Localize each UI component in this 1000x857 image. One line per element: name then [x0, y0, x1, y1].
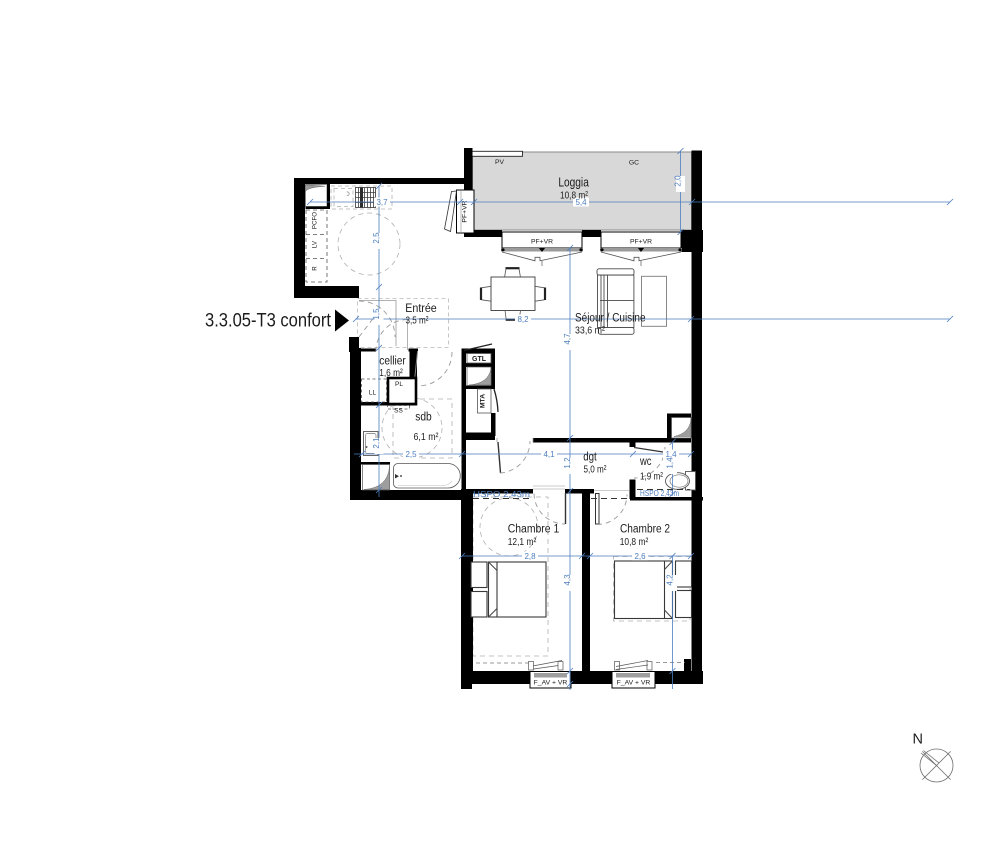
svg-text:Séjour / Cuisine: Séjour / Cuisine [575, 313, 646, 325]
svg-text:Chambre 1: Chambre 1 [508, 524, 560, 536]
svg-text:3,5 m²: 3,5 m² [406, 315, 429, 327]
svg-text:4,3: 4,3 [563, 574, 572, 586]
svg-text:2,6: 2,6 [634, 552, 646, 561]
svg-text:GC: GC [629, 160, 639, 167]
svg-text:R: R [312, 266, 319, 271]
svg-text:2,5: 2,5 [372, 232, 381, 244]
svg-text:LV: LV [312, 240, 319, 248]
svg-text:sdb: sdb [415, 412, 432, 424]
svg-text:33,6 m²: 33,6 m² [575, 325, 605, 337]
svg-text:4,2: 4,2 [666, 574, 675, 586]
svg-text:PF+VR: PF+VR [630, 239, 652, 246]
svg-text:1,5: 1,5 [372, 308, 381, 320]
svg-text:4,1: 4,1 [543, 450, 555, 459]
svg-text:MTA: MTA [480, 394, 487, 408]
svg-text:dgt: dgt [583, 452, 597, 464]
svg-text:2,0: 2,0 [674, 175, 683, 187]
svg-text:4,7: 4,7 [563, 333, 572, 345]
svg-text:1,6 m²: 1,6 m² [379, 367, 403, 379]
svg-text:Chambre 2: Chambre 2 [620, 524, 670, 536]
svg-text:PF+VR: PF+VR [531, 239, 553, 246]
svg-text:LL: LL [369, 390, 377, 397]
svg-text:F_AV + VR: F_AV + VR [617, 680, 651, 687]
svg-text:N: N [913, 732, 923, 748]
svg-text:2,8: 2,8 [524, 552, 536, 561]
svg-text:PL: PL [395, 381, 403, 388]
svg-text:1,9 m²: 1,9 m² [640, 471, 663, 483]
svg-text:5,0 m²: 5,0 m² [584, 464, 607, 476]
svg-text:12,1 m²: 12,1 m² [508, 536, 537, 548]
svg-text:10,8 m²: 10,8 m² [620, 536, 649, 548]
svg-text:10,8 m²: 10,8 m² [560, 189, 588, 201]
svg-text:GTL: GTL [472, 356, 487, 363]
svg-text:3,7: 3,7 [376, 198, 388, 207]
svg-text:Entrée: Entrée [405, 303, 437, 315]
svg-text:3.3.05-T3 confort: 3.3.05-T3 confort [205, 311, 332, 332]
svg-text:F_AV + VR: F_AV + VR [534, 680, 568, 687]
svg-text:2,5: 2,5 [405, 450, 417, 459]
svg-text:Loggia: Loggia [558, 175, 589, 189]
svg-text:6,1 m²: 6,1 m² [414, 431, 439, 443]
svg-text:1,4: 1,4 [666, 457, 675, 469]
svg-text:wc: wc [639, 456, 652, 468]
svg-text:2,1: 2,1 [372, 437, 381, 449]
svg-text:1,2: 1,2 [563, 457, 572, 469]
svg-text:HSPO 2,43m: HSPO 2,43m [640, 489, 679, 498]
svg-text:SS: SS [394, 408, 403, 415]
svg-text:8,2: 8,2 [517, 315, 529, 324]
svg-text:cellier: cellier [379, 356, 406, 368]
svg-text:PV: PV [495, 159, 505, 166]
svg-text:HSPO 2,43m: HSPO 2,43m [473, 490, 530, 499]
svg-text:PF+VR: PF+VR [462, 200, 469, 222]
svg-text:PCFO: PCFO [312, 212, 319, 229]
